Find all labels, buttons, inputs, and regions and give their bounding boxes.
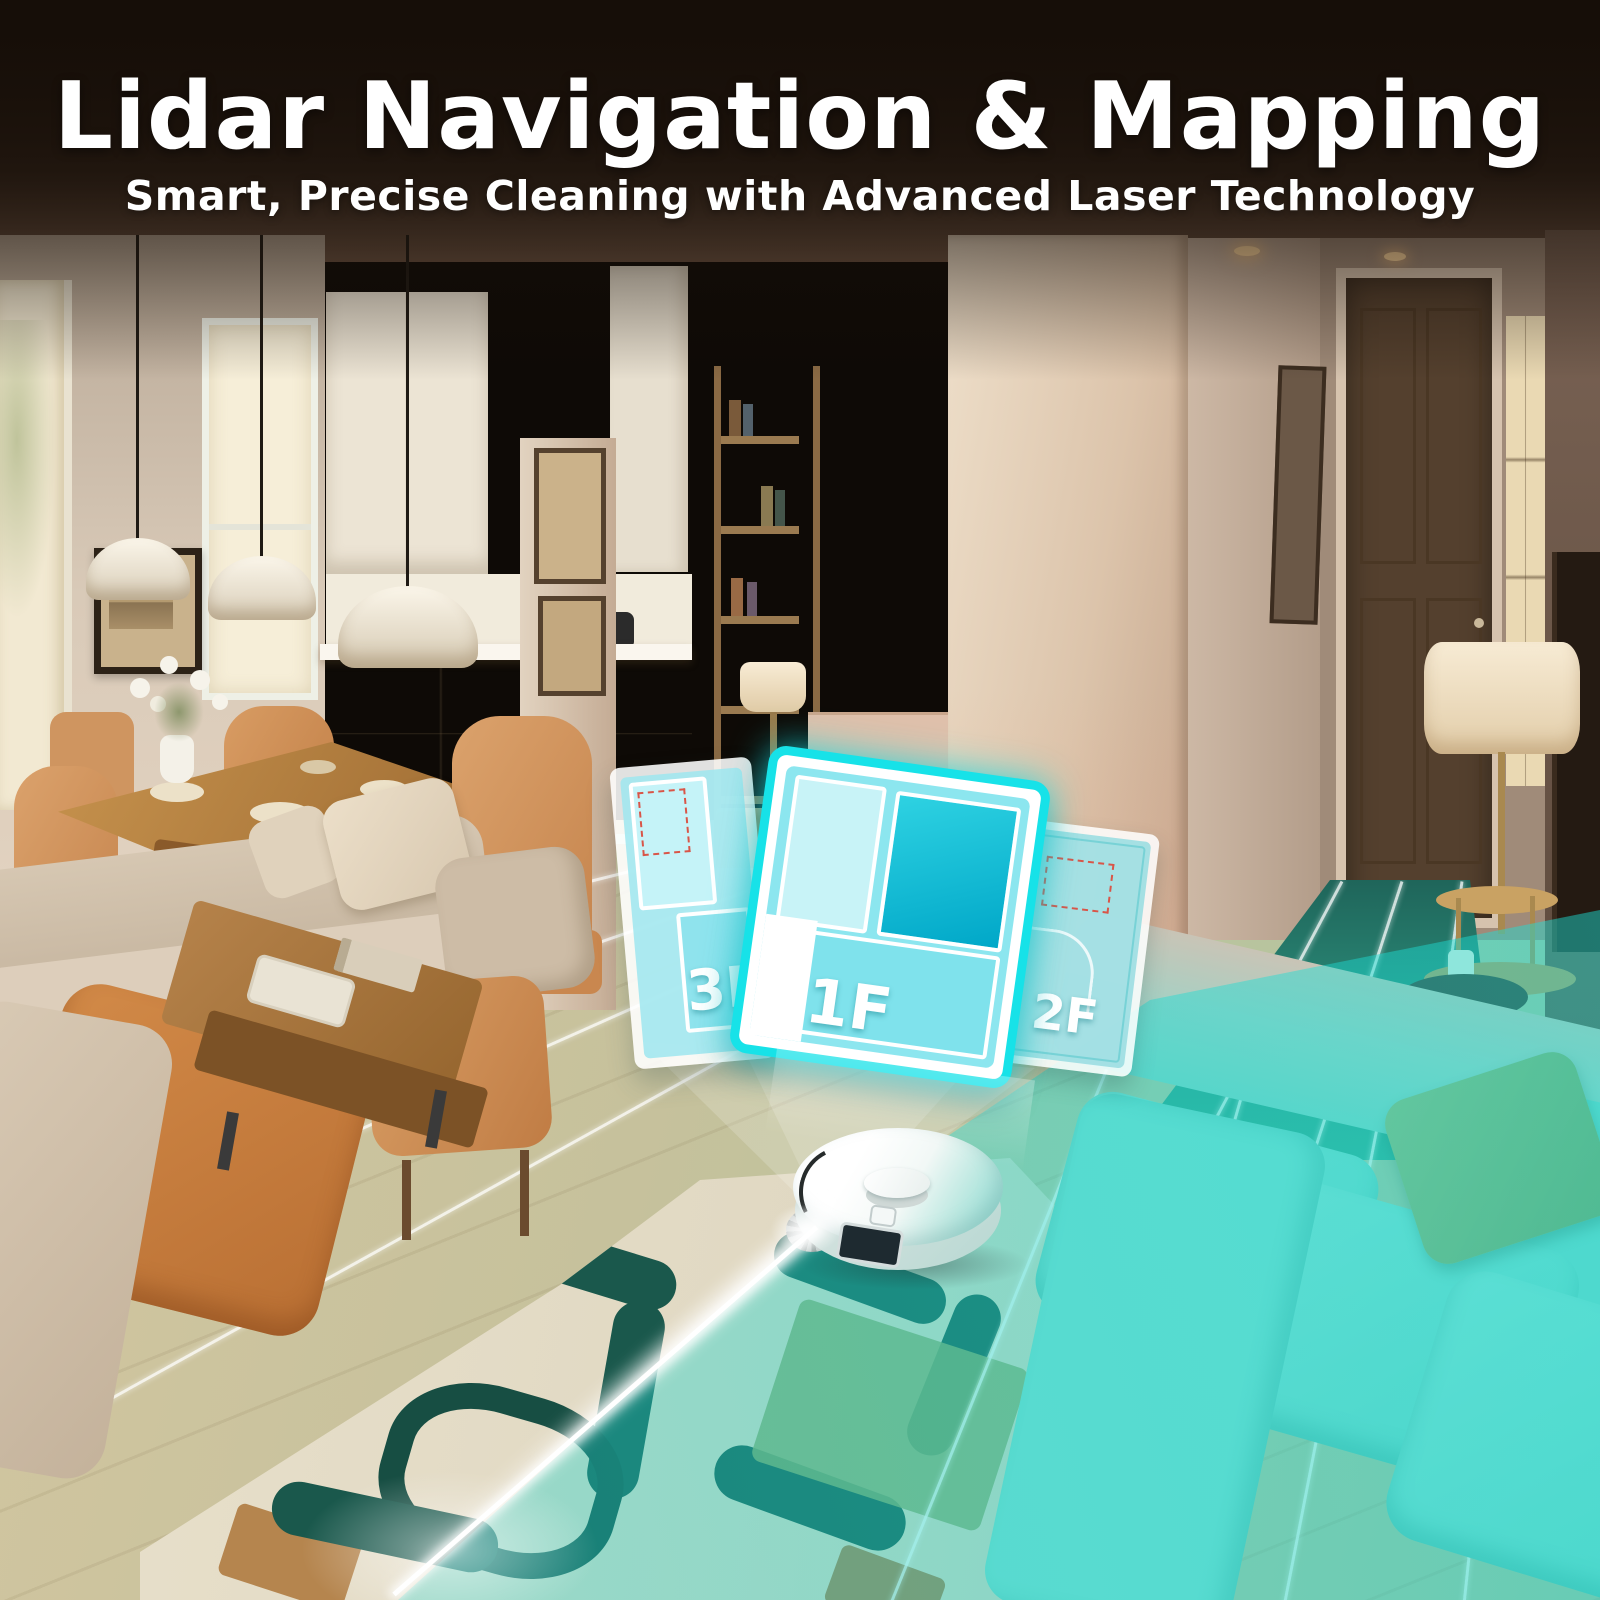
book [761,486,773,526]
map-card-1f-label: 1F [802,964,897,1048]
chair-leg [520,1150,529,1236]
shelf-board [721,616,799,624]
window-greenery [0,320,56,620]
column-frame-1 [534,448,606,584]
robot-button [869,1204,898,1227]
table-bowl [300,760,336,774]
side-table-tier [1436,886,1558,914]
door-panel [1426,308,1482,564]
door-panel [1360,308,1416,564]
book [731,578,743,616]
no-go-zone [637,788,690,856]
flower-stems [154,682,204,742]
map-room [876,791,1021,953]
book [743,404,753,436]
cabinet-lamp-shade [740,662,806,712]
hallway-ceiling-light [1384,252,1406,261]
page-subtitle: Smart, Precise Cleaning with Advanced La… [0,172,1600,220]
shelf-board [721,526,799,534]
flower [160,656,178,674]
shelf-board [721,436,799,444]
hallway-door [1346,278,1492,918]
pendant-cord [260,235,263,561]
hallway-ceiling-light [1234,246,1260,256]
no-go-zone [1041,856,1115,914]
flower [212,694,228,710]
hallway-picture-frame [1270,365,1327,625]
book [747,582,757,616]
laser-flare [770,1204,840,1254]
map-card-1f: 1F [728,744,1052,1091]
pendant-cord [406,235,409,591]
door-panel [1360,598,1416,864]
kitchen-tall-cabinet [610,266,688,572]
pendant-cord [136,235,139,543]
flower [130,678,150,698]
table-plate [150,782,204,802]
page-title: Lidar Navigation & Mapping [0,62,1600,170]
chair-leg [402,1160,411,1240]
map-room [775,775,887,934]
column-frame-2 [538,596,606,696]
robot-lidar-turret [864,1168,930,1198]
door-handle [1474,618,1484,628]
floor-lamp-shade [1424,642,1580,754]
side-table-post [1530,896,1535,970]
scene: 3F 2F 1F Lidar Navigation & Mapping Smar… [0,0,1600,1600]
book [729,400,741,436]
hallway [1188,238,1545,940]
flower-bouquet [120,648,240,748]
book [775,490,785,526]
laser-flare [300,1470,600,1600]
map-card-2f-label: 2F [1029,983,1102,1047]
